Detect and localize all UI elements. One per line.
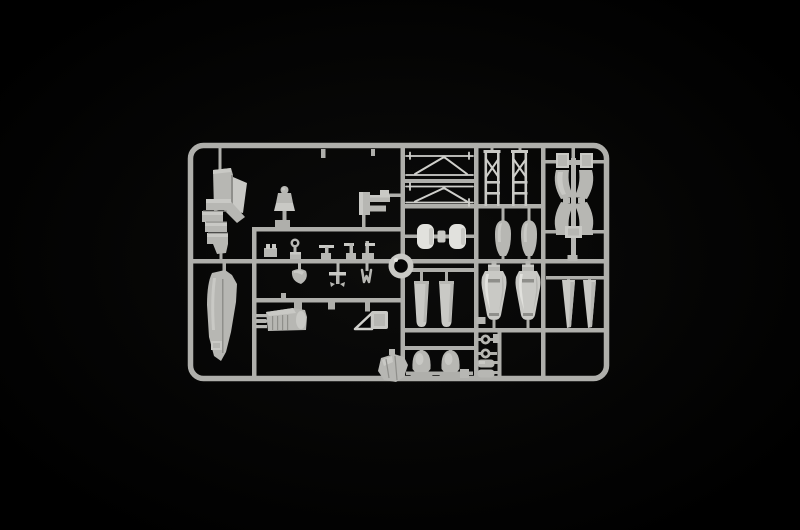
- sprue-photo-canvas: [0, 0, 800, 530]
- sprue-photo: [0, 0, 800, 530]
- part-alignment-ring: [389, 254, 414, 279]
